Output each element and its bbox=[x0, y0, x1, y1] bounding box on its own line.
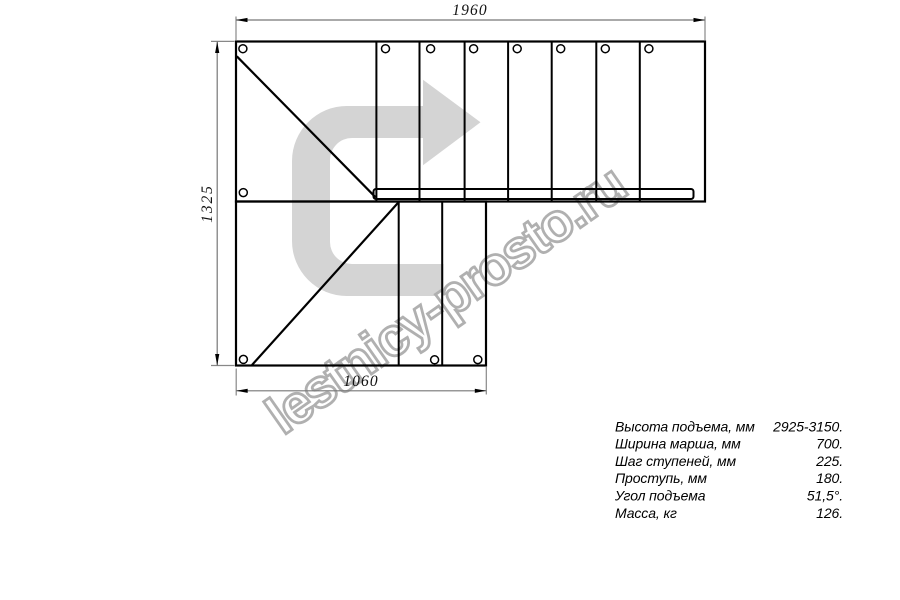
svg-text:700.: 700. bbox=[816, 436, 843, 452]
svg-text:Угол подъема: Угол подъема bbox=[614, 488, 706, 504]
svg-text:Шаг ступеней, мм: Шаг ступеней, мм bbox=[615, 453, 736, 469]
svg-text:Проступь, мм: Проступь, мм bbox=[615, 470, 707, 486]
svg-text:Масса, кг: Масса, кг bbox=[615, 505, 677, 521]
svg-text:180.: 180. bbox=[816, 470, 843, 486]
svg-text:51,5°.: 51,5°. bbox=[807, 488, 843, 504]
svg-text:Ширина марша, мм: Ширина марша, мм bbox=[615, 436, 741, 452]
svg-text:1325: 1325 bbox=[199, 184, 216, 223]
svg-text:2925-3150.: 2925-3150. bbox=[772, 418, 843, 434]
svg-text:126.: 126. bbox=[816, 505, 843, 521]
svg-text:225.: 225. bbox=[815, 453, 843, 469]
svg-text:1960: 1960 bbox=[452, 2, 487, 19]
svg-text:Высота подъема, мм: Высота подъема, мм bbox=[615, 418, 755, 434]
svg-text:1060: 1060 bbox=[343, 373, 378, 390]
